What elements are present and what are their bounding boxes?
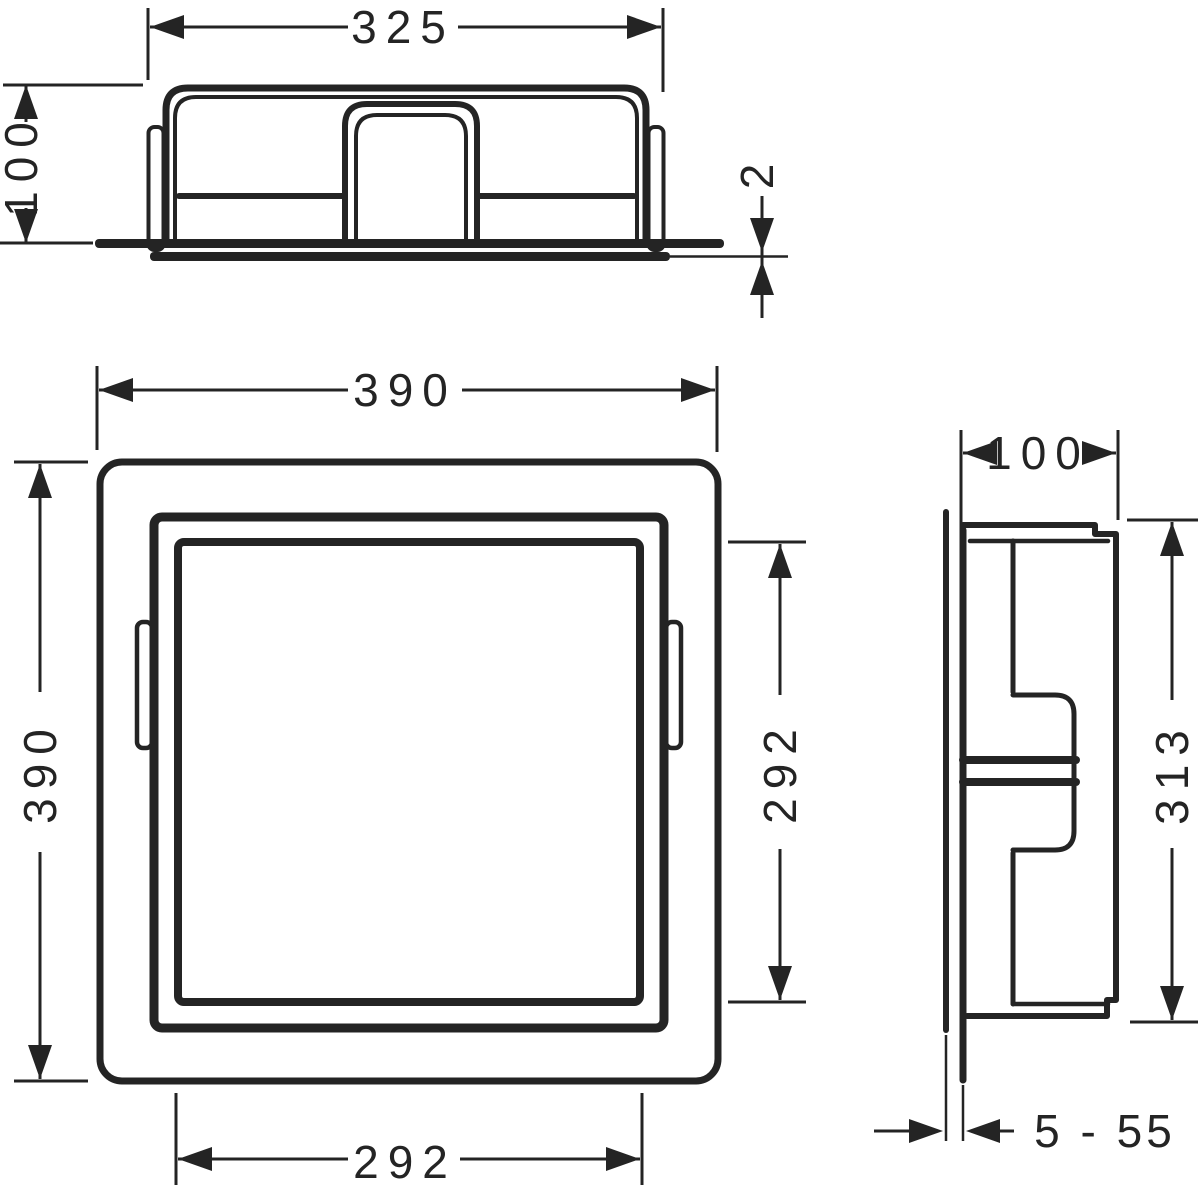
dim-tile-range-label: 5 - 55 [1034,1105,1176,1157]
dim-opening-width-label: 292 [353,1136,457,1188]
dim-side-height: 313 [1127,520,1198,1022]
dim-side-height-arrow-down [1160,986,1184,1020]
dim-opening-height-arrow-up [768,544,792,578]
dim-flange-arrow-up [750,261,774,295]
dim-front-width-arrow-right [681,378,715,402]
dim-flange-arrow-down [750,218,774,252]
front-view-box-outline [154,517,664,1028]
top-view-flange-plate [150,252,670,261]
top-view-outer-shell [166,88,646,244]
dim-side-depth: 100 [961,427,1118,535]
dim-front-width-arrow-left [99,378,133,402]
dim-front-height-label: 390 [14,720,66,824]
dim-side-depth-label: 100 [986,427,1090,479]
dim-top-width-arrow-left [150,15,184,39]
front-view-opening-outline [178,542,640,1002]
top-view-center-channel-outer [345,104,477,244]
dim-front-height-arrow-up [28,464,52,498]
front-view-flange-outline [100,462,718,1081]
dim-front-width: 390 [97,364,717,452]
dim-tile-range: 5 - 55 [874,1105,1176,1157]
dim-front-height: 390 [14,462,88,1081]
dim-top-depth-label: 100 [0,113,47,217]
top-view-left-clip-tab [149,127,164,250]
dim-tile-range-arrow-left-pointing [966,1119,1000,1143]
dim-opening-width-arrow-left [178,1147,212,1171]
dim-opening-width-arrow-right [606,1147,640,1171]
dim-top-width-label: 325 [351,1,455,53]
dim-front-width-label: 390 [353,364,457,416]
front-view [100,462,718,1081]
dim-side-height-arrow-up [1160,522,1184,556]
top-view [95,88,724,261]
dim-flange-label: 2 [731,155,783,190]
dim-top-width: 325 [148,1,663,92]
dim-top-depth: 100 [0,85,143,243]
top-view-right-clip-tab [649,127,664,250]
side-view-clip-pocket [1013,695,1074,850]
front-view-right-clip-tab [666,622,681,748]
dim-opening-width: 292 [176,1093,642,1188]
dim-side-height-label: 313 [1146,721,1198,825]
dim-tile-range-arrow-right-pointing [909,1119,943,1143]
dim-opening-height-label: 292 [754,720,806,824]
dim-opening-height: 292 [728,542,806,1002]
top-view-center-channel-inner [356,115,466,244]
dim-flange-thickness: 2 [670,155,788,318]
top-view-inner-shell [175,97,637,244]
side-view-body-outline [963,525,1116,1016]
front-view-left-clip-tab [137,622,152,748]
dim-front-height-arrow-down [28,1045,52,1079]
side-view [946,512,1116,1141]
niche-dimension-drawing: 325 100 2 390 [0,0,1200,1189]
dim-opening-height-arrow-down [768,966,792,1000]
dim-top-width-arrow-right [627,15,661,39]
technical-drawing-canvas: 325 100 2 390 [0,0,1200,1189]
top-view-wall-line [95,239,724,248]
